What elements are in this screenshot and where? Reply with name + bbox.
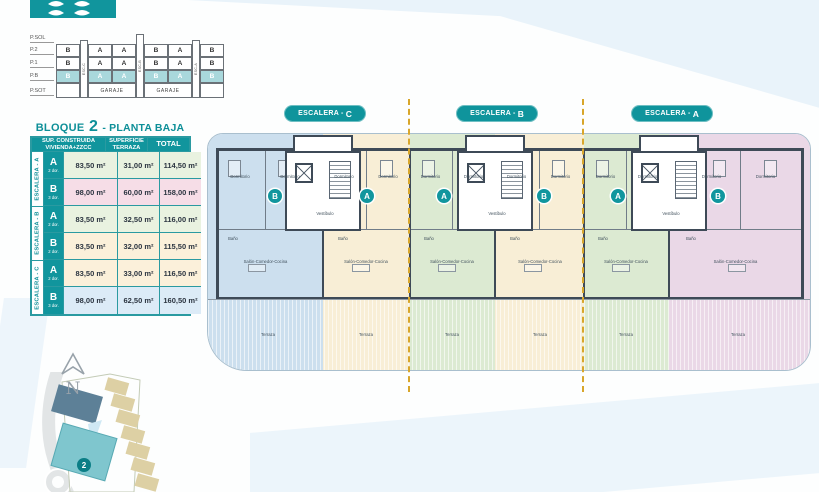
- room-label: Baño: [414, 236, 444, 241]
- unit-cell-current-floor: A: [88, 70, 112, 83]
- table-row: A2 dor. 83,50 m² 33,00 m² 116,50 m²: [44, 260, 201, 287]
- escalera-group-label: ESCALERA - C: [32, 261, 43, 314]
- total-value: 116,50 m²: [160, 260, 201, 287]
- unit-letter-cell: B3 dor.: [44, 179, 64, 206]
- unit-cell: B: [56, 44, 80, 57]
- section-divider: [582, 99, 584, 392]
- room-label: Dormitorio: [216, 174, 264, 179]
- building-section-diagram: P.SOL P.2 P.1 P.B P.SOT B A A B A B B A …: [30, 32, 230, 104]
- room-label: Baño: [218, 236, 248, 241]
- unit-letter-cell: A2 dor.: [44, 152, 64, 179]
- stairs-icon: [675, 161, 697, 199]
- floor-label: P.2: [30, 47, 54, 55]
- room-label: Baño: [500, 236, 530, 241]
- total-value: 115,50 m²: [160, 233, 201, 260]
- basement-cell: [56, 83, 80, 98]
- table-row: B3 dor. 98,00 m² 60,00 m² 158,00 m²: [44, 179, 201, 206]
- header-total: TOTAL: [148, 138, 189, 152]
- unit-letter-cell: A2 dor.: [44, 260, 64, 287]
- stair-strip-label: ESC-B: [138, 60, 142, 72]
- unit-cell: A: [88, 44, 112, 57]
- unit-marker-a-a: A: [611, 189, 625, 203]
- room-label: Salón-Comedor-Cocina: [494, 259, 586, 264]
- terrace-value: 31,00 m²: [118, 152, 160, 179]
- unit-cell: B: [144, 57, 168, 70]
- room-label: Dormitorio: [365, 174, 411, 179]
- room-label: Salón-Comedor-Cocina: [407, 259, 497, 264]
- table-row: A2 dor. 83,50 m² 31,00 m² 114,50 m²: [44, 152, 201, 179]
- unit-letter-cell: B2 dor.: [44, 233, 64, 260]
- header-terrace: SUPERFICIE TERRAZA: [106, 138, 148, 152]
- elevator-icon: [467, 163, 485, 183]
- room-label: Terraza: [708, 332, 768, 337]
- room-label: Dormitorio: [494, 174, 539, 179]
- terrace-value: 60,00 m²: [118, 179, 160, 206]
- unit-marker-b-a: A: [437, 189, 451, 203]
- header-built: SUP. CONSTRUIDA VIVIENDA+ZZCC: [32, 138, 106, 152]
- unit-cell-current-floor: B: [200, 70, 224, 83]
- room-label: Terraza: [422, 332, 482, 337]
- escalera-group-label: ESCALERA - B: [32, 207, 43, 261]
- room-label: Dormitorio: [451, 174, 496, 179]
- core-escalera-b: Vestíbulo: [457, 151, 533, 231]
- stair-strip-label: ESC-A: [194, 63, 198, 75]
- elevator-icon: [641, 163, 659, 183]
- sofa: [612, 264, 630, 272]
- brand-logo: [30, 0, 116, 18]
- unit-cell-current-floor: B: [56, 70, 80, 83]
- stair-strip: ESC-C: [80, 40, 88, 98]
- unit-cell: A: [88, 57, 112, 70]
- room-label: Dormitorio: [321, 174, 367, 179]
- terrace-value: 32,00 m²: [118, 233, 160, 260]
- total-value: 116,00 m²: [160, 206, 201, 233]
- garage-cell: GARAJE: [144, 83, 192, 98]
- terrace-value: 33,00 m²: [118, 260, 160, 287]
- title-floor: - PLANTA BAJA: [102, 122, 184, 134]
- unit-marker-b-b: B: [537, 189, 551, 203]
- room-label: Salón-Comedor-Cocina: [218, 259, 313, 264]
- unit-marker-a-b: B: [711, 189, 725, 203]
- site-houses: [104, 377, 159, 492]
- terrace-value: 32,50 m²: [118, 206, 160, 233]
- background-ribbon: [250, 383, 819, 492]
- section-divider: [408, 99, 410, 392]
- wall: [216, 297, 804, 299]
- sofa: [352, 264, 370, 272]
- escalera-b-pill: ESCALERA -B: [456, 105, 538, 122]
- unit-marker-c-a: A: [360, 189, 374, 203]
- table-row: B2 dor. 83,50 m² 32,00 m² 115,50 m²: [44, 233, 201, 260]
- stair-strip: ESC-A: [192, 40, 200, 98]
- brochure-page: P.SOL P.2 P.1 P.B P.SOT B A A B A B B A …: [0, 0, 819, 492]
- unit-cell: A: [168, 57, 192, 70]
- elevator-icon: [295, 163, 313, 183]
- room-label: Terraza: [238, 332, 298, 337]
- room-label: Dormitorio: [684, 174, 739, 179]
- title-number: 2: [89, 118, 98, 135]
- sofa: [248, 264, 266, 272]
- title-bloque: BLOQUE: [36, 122, 85, 134]
- room-label: Terraza: [336, 332, 396, 337]
- floor-label: P.SOL: [30, 35, 54, 43]
- built-value: 83,50 m²: [64, 260, 118, 287]
- unit-cell: B: [144, 44, 168, 57]
- floor-label: P.B: [30, 73, 54, 81]
- built-value: 98,00 m²: [64, 179, 118, 206]
- escalera-group-label: ESCALERA - A: [32, 152, 43, 206]
- wall: [801, 148, 804, 299]
- table-row: A2 dor. 83,50 m² 32,50 m² 116,00 m²: [44, 206, 201, 233]
- room-label: Salón-Comedor-Cocina: [320, 259, 412, 264]
- garage-cell: GARAJE: [88, 83, 136, 98]
- sofa: [728, 264, 746, 272]
- room-label: Salón-Comedor-Cocina: [581, 259, 671, 264]
- floor-label: P.1: [30, 60, 54, 68]
- room-label: Terraza: [510, 332, 570, 337]
- total-value: 114,50 m²: [160, 152, 201, 179]
- total-value: 158,00 m²: [160, 179, 201, 206]
- page-title: BLOQUE 2 - PLANTA BAJA: [28, 118, 192, 136]
- unit-cell: A: [112, 57, 136, 70]
- built-value: 98,00 m²: [64, 287, 118, 314]
- room-label: Dormitorio: [408, 174, 453, 179]
- north-arrow-icon: [58, 352, 88, 376]
- unit-letter-cell: B3 dor.: [44, 287, 64, 314]
- floor-plan-plot: Vestíbulo Vestíbulo Vestíbulo Dormitorio…: [207, 133, 811, 371]
- basement-cell: [200, 83, 224, 98]
- room-label: Dormitorio: [625, 174, 670, 179]
- built-value: 83,50 m²: [64, 233, 118, 260]
- room-label: Salón-Comedor-Cocina: [688, 259, 783, 264]
- wall: [216, 148, 219, 299]
- unit-cell-current-floor: A: [112, 70, 136, 83]
- terrace-value: 62,50 m²: [118, 287, 160, 314]
- logo-waves-icon: [30, 0, 116, 18]
- core-escalera-a: Vestíbulo: [631, 151, 707, 231]
- built-value: 83,50 m²: [64, 152, 118, 179]
- total-value: 160,50 m²: [160, 287, 201, 314]
- site-plan: [22, 372, 182, 492]
- unit-cell-current-floor: B: [144, 70, 168, 83]
- unit-letter-cell: A2 dor.: [44, 206, 64, 233]
- unit-cell: A: [112, 44, 136, 57]
- room-label: Dormitorio: [583, 174, 628, 179]
- unit-cell: A: [168, 44, 192, 57]
- sofa: [438, 264, 456, 272]
- stairs-icon: [501, 161, 523, 199]
- stair-strip: ESC-B: [136, 34, 144, 98]
- room-label: Baño: [676, 236, 706, 241]
- escalera-column: ESCALERA - A ESCALERA - B ESCALERA - C: [32, 152, 44, 314]
- unit-cell: B: [56, 57, 80, 70]
- unit-cell-current-floor: A: [168, 70, 192, 83]
- sofa: [524, 264, 542, 272]
- room-label: Baño: [588, 236, 618, 241]
- built-value: 83,50 m²: [64, 206, 118, 233]
- compass: N: [56, 352, 90, 398]
- room-label: Baño: [328, 236, 358, 241]
- room-label: Dormitorio: [738, 174, 793, 179]
- escalera-c-pill: ESCALERA -C: [284, 105, 366, 122]
- unit-marker-c-b: B: [268, 189, 282, 203]
- table-header-row: SUP. CONSTRUIDA VIVIENDA+ZZCC SUPERFICIE…: [32, 138, 189, 152]
- stairs-icon: [329, 161, 351, 199]
- core-escalera-c: Vestíbulo: [285, 151, 361, 231]
- stair-strip-label: ESC-C: [82, 63, 86, 75]
- surfaces-table: SUP. CONSTRUIDA VIVIENDA+ZZCC SUPERFICIE…: [30, 136, 191, 316]
- room-label: Terraza: [596, 332, 656, 337]
- unit-cell: B: [200, 57, 224, 70]
- floor-label: P.SOT: [30, 88, 54, 96]
- table-row: B3 dor. 98,00 m² 62,50 m² 160,50 m²: [44, 287, 201, 314]
- room-label: Dormitorio: [538, 174, 583, 179]
- room-label: Dormitorio: [266, 174, 314, 179]
- escalera-a-pill: ESCALERA -A: [631, 105, 713, 122]
- compass-label: N: [56, 381, 90, 398]
- unit-cell: B: [200, 44, 224, 57]
- block-2-badge: 2: [77, 458, 91, 472]
